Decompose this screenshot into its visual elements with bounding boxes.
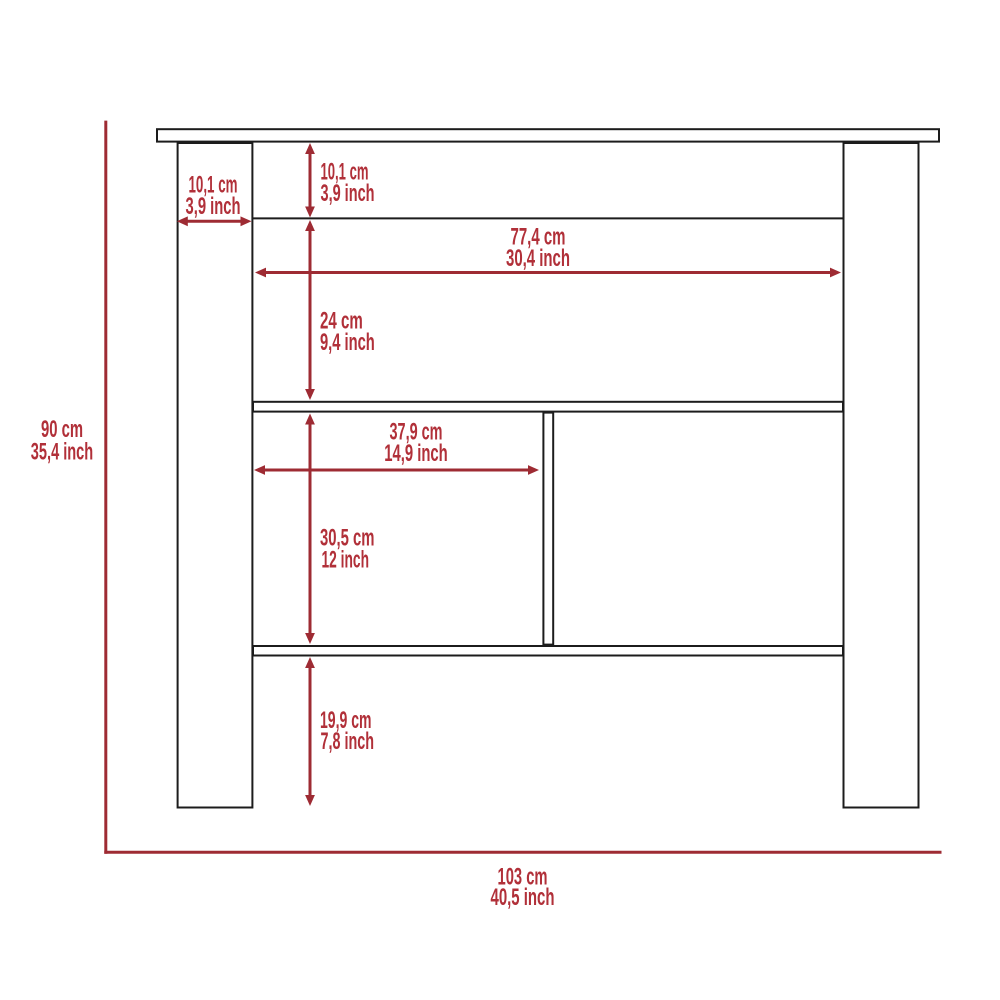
svg-text:9,4 inch: 9,4 inch <box>320 329 375 356</box>
svg-text:7,8 inch: 7,8 inch <box>321 728 375 755</box>
svg-text:40,5 inch: 40,5 inch <box>491 884 555 911</box>
svg-text:35,4 inch: 35,4 inch <box>31 438 93 465</box>
svg-text:3,9 inch: 3,9 inch <box>321 180 375 207</box>
svg-text:14,9 inch: 14,9 inch <box>384 440 448 467</box>
svg-text:30,4 inch: 30,4 inch <box>506 245 570 272</box>
svg-text:12 inch: 12 inch <box>322 546 370 573</box>
svg-text:3,9 inch: 3,9 inch <box>186 193 241 220</box>
